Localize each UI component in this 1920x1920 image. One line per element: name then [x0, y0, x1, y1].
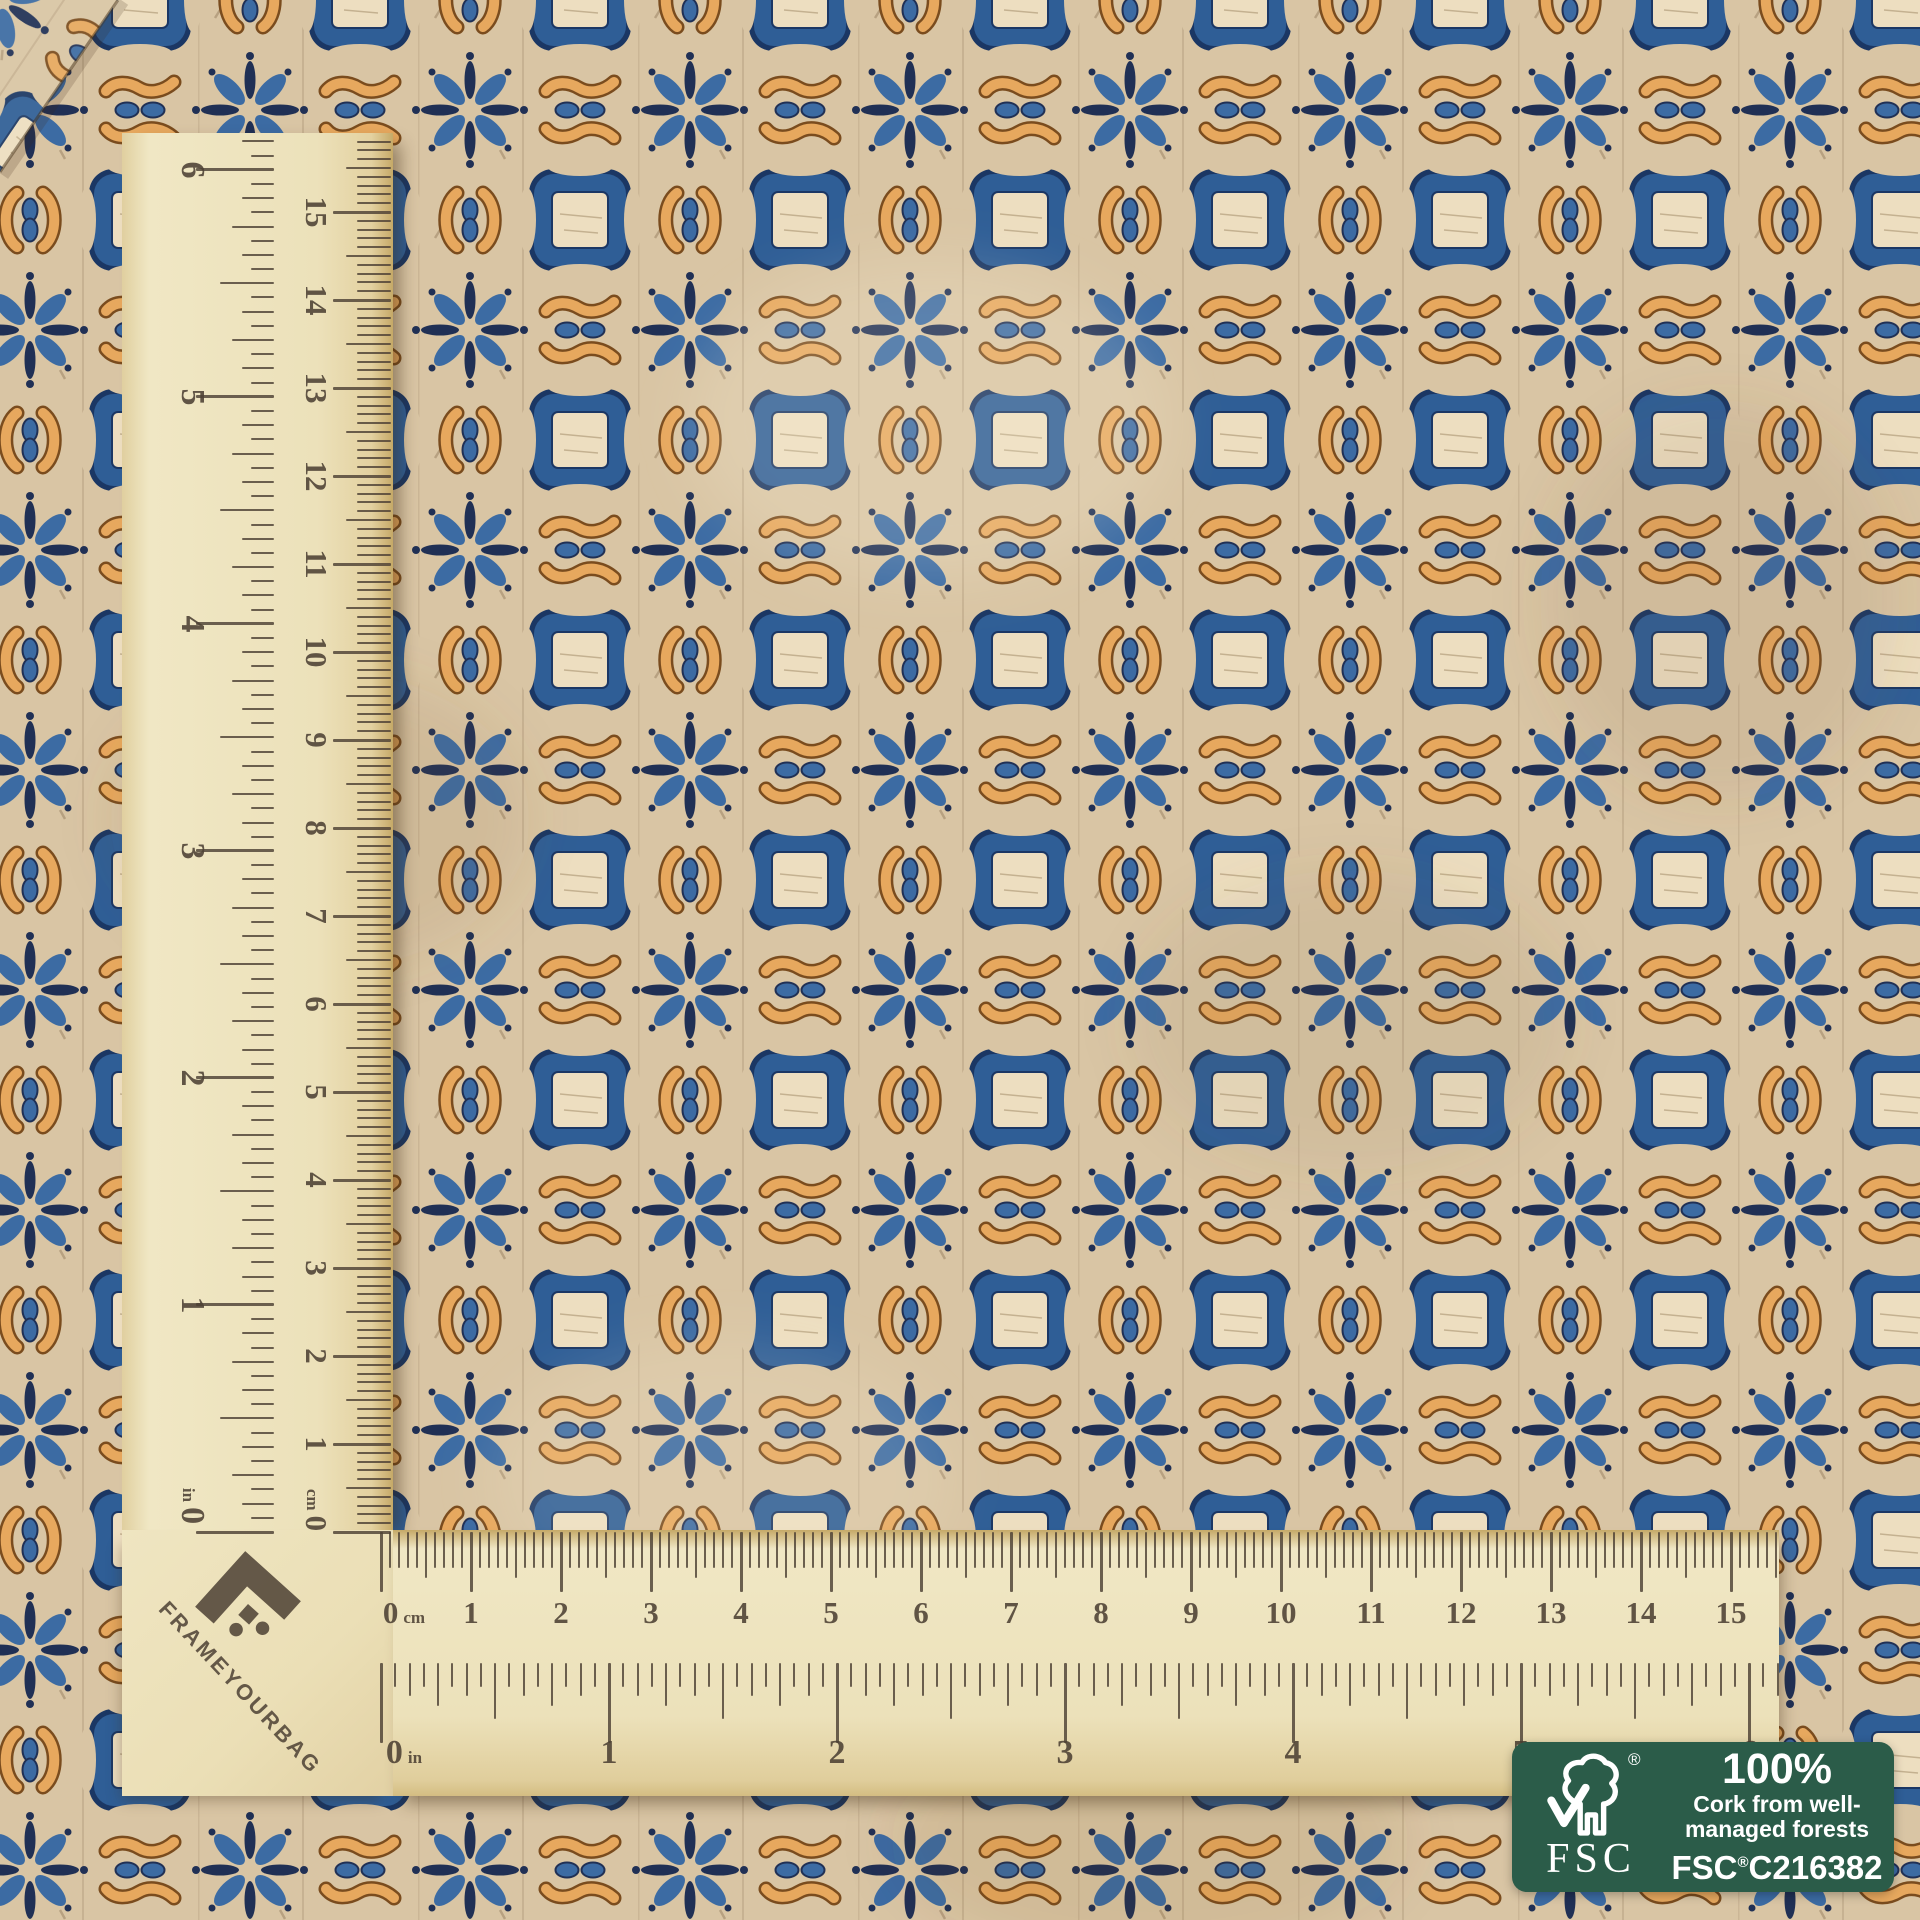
ruler-tick — [1325, 1532, 1327, 1578]
ruler-tick — [357, 730, 391, 732]
ruler-tick — [803, 1532, 805, 1568]
ruler-tick — [357, 1496, 391, 1498]
ruler-tick — [1100, 1532, 1103, 1592]
ruler-tick — [232, 566, 274, 568]
ruler-tick — [251, 779, 274, 781]
ruler-tick — [357, 185, 391, 187]
ruler-tick — [357, 1505, 391, 1507]
ruler-tick — [251, 183, 274, 185]
ruler-tick — [1361, 1532, 1363, 1568]
ruler-tick — [1606, 1663, 1608, 1696]
ruler-tick — [776, 1532, 778, 1568]
ruler-tick — [659, 1532, 661, 1568]
ruler-tick — [902, 1532, 904, 1568]
ruler-tick — [357, 1241, 391, 1243]
ruler-tick — [1136, 1532, 1138, 1568]
ruler-tick — [346, 695, 391, 697]
ruler-tick — [251, 949, 274, 951]
ruler-tick — [1658, 1532, 1660, 1568]
ruler-tick — [1777, 1663, 1779, 1696]
ruler-tick — [565, 1663, 567, 1687]
cm-number: 14 — [292, 255, 340, 345]
ruler-tick — [357, 440, 391, 442]
ruler-tick — [357, 1038, 391, 1040]
ruler-tick — [1449, 1663, 1451, 1687]
ruler-tick — [357, 774, 391, 776]
ruler-tick — [357, 994, 391, 996]
ruler-tick — [974, 1532, 976, 1568]
ruler-tick — [333, 651, 391, 654]
ruler-tick — [794, 1532, 796, 1568]
ruler-tick — [704, 1532, 706, 1568]
ruler-tick — [251, 467, 274, 469]
l-square-ruler: FRAMEYOURBAG 112233445566778899101011111… — [0, 0, 1920, 1920]
ruler-tick — [251, 807, 274, 809]
ruler-tick — [740, 1532, 743, 1592]
ruler-tick — [1435, 1663, 1437, 1696]
ruler-tick — [242, 311, 274, 313]
ruler-tick — [1631, 1532, 1633, 1568]
ruler-tick — [357, 1126, 391, 1128]
ruler-tick — [242, 254, 274, 256]
ruler-tick — [437, 1663, 439, 1706]
ruler-tick — [251, 1091, 274, 1093]
ruler-tick — [242, 1389, 274, 1391]
ruler-tick — [333, 299, 391, 302]
ruler-tick — [508, 1663, 510, 1687]
ruler-tick — [884, 1532, 886, 1568]
ruler-tick — [242, 1276, 274, 1278]
ruler-tick — [357, 836, 391, 838]
ruler-tick — [333, 1179, 391, 1182]
ruler-tick — [357, 537, 391, 539]
ruler-tick — [242, 1446, 274, 1448]
ruler-tick — [357, 1012, 391, 1014]
ruler-tick — [587, 1532, 589, 1568]
ruler-tick — [251, 325, 274, 327]
ruler-tick — [333, 211, 391, 214]
cm-number: 5 — [786, 1589, 876, 1637]
ruler-tick — [333, 1531, 391, 1534]
ruler-tick — [1634, 1663, 1636, 1719]
ruler-tick — [357, 220, 391, 222]
ruler-tick — [578, 1532, 580, 1568]
ruler-tick — [965, 1532, 967, 1578]
ruler-tick — [242, 765, 274, 767]
ruler-tick — [251, 353, 274, 355]
ruler-tick — [470, 1532, 473, 1592]
ruler-tick — [357, 686, 391, 688]
ruler-tick — [251, 495, 274, 497]
ruler-tick — [357, 1276, 391, 1278]
ruler-tick — [758, 1532, 760, 1568]
ruler-tick — [357, 862, 391, 864]
ruler-tick — [346, 1135, 391, 1137]
ruler-tick — [1549, 1663, 1551, 1696]
ruler-tick — [779, 1663, 781, 1706]
ruler-tick — [242, 1503, 274, 1505]
ruler-tick — [1253, 1532, 1255, 1568]
ruler-tick — [1487, 1532, 1489, 1568]
ruler-tick — [1694, 1532, 1696, 1568]
ruler-tick — [232, 793, 274, 795]
ruler-tick — [251, 1233, 274, 1235]
ruler-tick — [1541, 1532, 1543, 1568]
ruler-tick — [1559, 1532, 1561, 1568]
ruler-tick — [1021, 1663, 1023, 1687]
ruler-tick — [251, 1148, 274, 1150]
ruler-tick — [357, 352, 391, 354]
ruler-tick — [708, 1663, 710, 1687]
ruler-tick — [651, 1663, 653, 1687]
ruler-tick — [480, 1663, 482, 1687]
ruler-tick — [357, 510, 391, 512]
ruler-tick — [357, 1109, 391, 1111]
ruler-tick — [1591, 1663, 1593, 1687]
ruler-tick — [357, 1197, 391, 1199]
ruler-tick — [346, 167, 391, 169]
ruler-tick — [357, 1417, 391, 1419]
ruler-tick — [479, 1532, 481, 1568]
ruler-tick — [357, 924, 391, 926]
ruler-tick — [380, 1532, 383, 1592]
ruler-tick — [524, 1532, 526, 1568]
ruler-tick — [1316, 1532, 1318, 1568]
ruler-tick — [1055, 1532, 1057, 1578]
ruler-tick — [668, 1532, 670, 1568]
ruler-tick — [1663, 1663, 1665, 1696]
ruler-tick — [357, 1373, 391, 1375]
ruler-tick — [1460, 1532, 1463, 1592]
ruler-tick — [423, 1663, 425, 1687]
ruler-tick — [920, 1532, 923, 1592]
ruler-tick — [947, 1532, 949, 1568]
ruler-tick — [1677, 1663, 1679, 1687]
fsc-license-code: FSC®C216382 — [1671, 1849, 1882, 1887]
ruler-tick — [1712, 1532, 1714, 1568]
ruler-tick — [251, 268, 274, 270]
ruler-tick — [1622, 1532, 1624, 1568]
ruler-tick — [357, 334, 391, 336]
ruler-tick — [357, 1346, 391, 1348]
ruler-tick — [232, 339, 274, 341]
ruler-tick — [950, 1663, 952, 1719]
ruler-tick — [1534, 1663, 1536, 1687]
ruler-tick — [242, 992, 274, 994]
ruler-tick — [850, 1663, 852, 1687]
ruler-tick — [1306, 1663, 1308, 1687]
ruler-tick — [623, 1532, 625, 1568]
ruler-tick — [232, 1361, 274, 1363]
ruler-tick — [409, 1663, 411, 1696]
ruler-tick — [1620, 1663, 1622, 1687]
ruler-tick — [242, 538, 274, 540]
ruler-tick — [1178, 1663, 1180, 1719]
ruler-tick — [357, 845, 391, 847]
ruler-tick — [1217, 1532, 1219, 1568]
cm-number: 7 — [292, 871, 340, 961]
ruler-tick — [416, 1532, 418, 1568]
ruler-tick — [407, 1532, 409, 1568]
ruler-tick — [466, 1663, 468, 1696]
ruler-tick — [749, 1532, 751, 1568]
ruler-tick — [542, 1532, 544, 1568]
cm-number: 13 — [292, 343, 340, 433]
ruler-tick — [808, 1663, 810, 1696]
ruler-tick — [357, 176, 391, 178]
ruler-tick — [251, 1318, 274, 1320]
ruler-tick — [251, 1403, 274, 1405]
ruler-tick — [1036, 1663, 1038, 1696]
ruler-tick — [686, 1532, 688, 1568]
cm-number: 5 — [292, 1047, 340, 1137]
ruler-tick — [821, 1532, 823, 1568]
ruler-tick — [1064, 1532, 1066, 1568]
ruler-tick — [357, 1285, 391, 1287]
ruler-tick — [1685, 1532, 1687, 1578]
ruler-tick — [251, 836, 274, 838]
inch-number: 2 — [792, 1729, 882, 1777]
ruler-tick — [1370, 1532, 1373, 1592]
ruler-tick — [1640, 1532, 1643, 1592]
ruler-tick — [812, 1532, 814, 1568]
ruler-tick — [232, 680, 274, 682]
ruler-tick — [1093, 1663, 1095, 1696]
inch-number: 1 — [168, 1260, 216, 1350]
ruler-tick — [641, 1532, 643, 1568]
ruler-tick — [251, 240, 274, 242]
ruler-tick — [357, 581, 391, 583]
ruler-tick — [1496, 1532, 1498, 1568]
ruler-tick — [922, 1663, 924, 1696]
ruler-tick — [251, 978, 274, 980]
cm-number: 8 — [292, 783, 340, 873]
ruler-tick — [346, 431, 391, 433]
ruler-tick — [357, 1232, 391, 1234]
ruler-tick — [1703, 1532, 1705, 1568]
ruler-tick — [251, 751, 274, 753]
ruler-tick — [333, 475, 391, 478]
ruler-tick — [220, 282, 274, 284]
ruler-tick — [333, 563, 391, 566]
ruler-tick — [1207, 1663, 1209, 1696]
inch-number: 4 — [168, 579, 216, 669]
ruler-tick — [357, 361, 391, 363]
ruler-tick — [1379, 1532, 1381, 1568]
ruler-tick — [251, 1205, 274, 1207]
ruler-tick — [677, 1532, 679, 1568]
inch-zero-label: 0in — [359, 1729, 449, 1777]
ruler-tick — [357, 1082, 391, 1084]
ruler-tick — [357, 642, 391, 644]
ruler-tick — [1307, 1532, 1309, 1568]
ruler-tick — [242, 1162, 274, 1164]
ruler-tick — [425, 1532, 427, 1578]
ruler-tick — [357, 158, 391, 160]
ruler-tick — [357, 757, 391, 759]
ruler-tick — [1676, 1532, 1678, 1568]
ruler-tick — [357, 1408, 391, 1410]
ruler-tick — [251, 864, 274, 866]
ruler-tick — [1271, 1532, 1273, 1568]
cm-number: 11 — [292, 519, 340, 609]
ruler-tick — [357, 378, 391, 380]
ruler-tick — [993, 1663, 995, 1687]
ruler-tick — [929, 1532, 931, 1568]
ruler-tick — [251, 609, 274, 611]
ruler-tick — [357, 1329, 391, 1331]
ruler-tick — [1145, 1532, 1147, 1578]
ruler-tick — [232, 1020, 274, 1022]
ruler-tick — [357, 466, 391, 468]
ruler-tick — [1150, 1663, 1152, 1696]
ruler-tick — [357, 950, 391, 952]
ruler-tick — [357, 1364, 391, 1366]
ruler-tick — [938, 1532, 940, 1568]
ruler-tick — [650, 1532, 653, 1592]
ruler-tick — [1775, 1532, 1777, 1578]
ruler-tick — [242, 197, 274, 199]
ruler-tick — [333, 1267, 391, 1270]
ruler-tick — [357, 616, 391, 618]
inch-number: 5 — [168, 352, 216, 442]
ruler-tick — [551, 1663, 553, 1706]
ruler-tick — [506, 1532, 508, 1568]
ruler-tick — [357, 273, 391, 275]
ruler-tick — [515, 1532, 517, 1578]
ruler-tick — [622, 1663, 624, 1687]
ruler-tick — [1392, 1663, 1394, 1687]
fsc-claim-line1: Cork from well- — [1693, 1792, 1860, 1817]
ruler-tick — [251, 1432, 274, 1434]
ruler-tick — [1163, 1532, 1165, 1568]
ruler-tick — [1280, 1532, 1283, 1592]
ruler-tick — [1127, 1532, 1129, 1568]
cm-zero-label: cm0 — [292, 1465, 340, 1555]
ruler-tick — [1050, 1663, 1052, 1687]
ruler-tick — [232, 226, 274, 228]
ruler-tick — [357, 660, 391, 662]
ruler-tick — [333, 1355, 391, 1358]
ruler-tick — [357, 1258, 391, 1260]
ruler-tick — [1010, 1532, 1013, 1592]
cm-number: 12 — [1416, 1589, 1506, 1637]
ruler-tick — [1420, 1663, 1422, 1687]
ruler-tick — [357, 1188, 391, 1190]
ruler-tick — [357, 669, 391, 671]
fsc-logo-block: ® FSC — [1512, 1742, 1670, 1892]
ruler-tick — [357, 880, 391, 882]
ruler-tick — [1019, 1532, 1021, 1568]
ruler-tick — [765, 1663, 767, 1687]
ruler-tick — [1135, 1663, 1137, 1687]
ruler-tick — [357, 818, 391, 820]
ruler-tick — [1037, 1532, 1039, 1568]
ruler-tick — [357, 1320, 391, 1322]
ruler-tick — [346, 1311, 391, 1313]
ruler-tick — [357, 906, 391, 908]
ruler-tick — [1335, 1663, 1337, 1687]
ruler-tick — [1649, 1532, 1651, 1568]
ruler-tick — [251, 1006, 274, 1008]
ruler-tick — [695, 1532, 697, 1578]
ruler-tick — [357, 1056, 391, 1058]
ruler-tick — [875, 1532, 877, 1578]
ruler-tick — [992, 1532, 994, 1568]
ruler-tick — [731, 1532, 733, 1568]
ruler-tick — [1221, 1663, 1223, 1687]
ruler-tick — [232, 907, 274, 909]
ruler-tick — [1478, 1532, 1480, 1568]
ruler-tick — [596, 1532, 598, 1568]
ruler-tick — [394, 1663, 396, 1687]
ruler-tick — [1415, 1532, 1417, 1578]
ruler-tick — [713, 1532, 715, 1568]
ruler-tick — [839, 1532, 841, 1568]
ruler-tick — [242, 651, 274, 653]
ruler-tick — [1442, 1532, 1444, 1568]
cm-number: 13 — [1506, 1589, 1596, 1637]
fsc-wordmark: FSC — [1546, 1838, 1636, 1880]
ruler-tick — [357, 1170, 391, 1172]
cm-number: 11 — [1326, 1589, 1416, 1637]
ruler-tick — [346, 783, 391, 785]
ruler-tick — [751, 1663, 753, 1696]
ruler-tick — [242, 935, 274, 937]
ruler-tick — [893, 1532, 895, 1568]
ruler-tick — [893, 1663, 895, 1706]
ruler-tick — [451, 1663, 453, 1687]
ruler-tick — [1154, 1532, 1156, 1568]
ruler-tick — [357, 1214, 391, 1216]
ruler-tick — [251, 1460, 274, 1462]
ruler-tick — [1406, 1532, 1408, 1568]
ruler-tick — [1613, 1532, 1615, 1568]
ruler-tick — [357, 202, 391, 204]
ruler-tick — [357, 484, 391, 486]
ruler-tick — [533, 1532, 535, 1568]
ruler-tick — [242, 1049, 274, 1051]
ruler-tick — [1091, 1532, 1093, 1568]
cm-number: 6 — [876, 1589, 966, 1637]
ruler-tick — [346, 959, 391, 961]
ruler-tick — [1406, 1663, 1408, 1719]
inch-number: 1 — [564, 1729, 654, 1777]
ruler-tick — [551, 1532, 553, 1568]
fsc-percent: 100% — [1722, 1747, 1832, 1792]
ruler-tick — [333, 1003, 391, 1006]
ruler-tick — [1568, 1532, 1570, 1568]
ruler-tick — [357, 1390, 391, 1392]
ruler-tick — [346, 1047, 391, 1049]
ruler-tick — [866, 1532, 868, 1568]
ruler-tick — [357, 1478, 391, 1480]
ruler-tick — [736, 1663, 738, 1687]
ruler-tick — [1721, 1532, 1723, 1568]
ruler-tick — [357, 1021, 391, 1023]
ruler-tick — [346, 1223, 391, 1225]
ruler-tick — [822, 1663, 824, 1687]
ruler-tick — [333, 1443, 391, 1446]
ruler-tick — [357, 792, 391, 794]
ruler-tick — [346, 255, 391, 257]
ruler-tick — [1577, 1532, 1579, 1568]
ruler-tick — [346, 871, 391, 873]
ruler-tick — [1278, 1663, 1280, 1687]
ruler-tick — [907, 1663, 909, 1687]
cm-number: 4 — [292, 1135, 340, 1225]
ruler-tick — [793, 1663, 795, 1687]
